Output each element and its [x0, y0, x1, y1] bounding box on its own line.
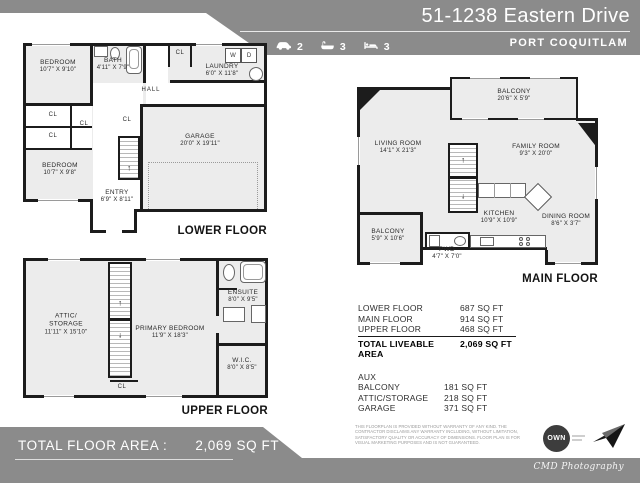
- row-label: UPPER FLOOR: [358, 324, 460, 335]
- listing-city: PORT COQUITLAM: [510, 37, 628, 49]
- wall: [357, 87, 360, 265]
- floorplan-sheet: 51-1238 Eastern Drive PORT COQUITLAM 2 3: [0, 0, 640, 483]
- room-label-garage: GARAGE 20'0" X 19'11": [180, 133, 220, 149]
- entry-door-gap: [106, 230, 122, 233]
- room-dims: 10'7" X 9'10": [40, 67, 77, 75]
- outside-area: [20, 202, 90, 240]
- closet-label: CL: [176, 50, 185, 56]
- room-label-living: LIVING ROOM 14'1" X 21'3": [375, 140, 422, 156]
- main-floor-plan: ↑ ↓ BALCONY 20'6" X 5'9" LIVING ROOM 14'…: [350, 75, 640, 290]
- bed-icon: [363, 38, 379, 56]
- wall: [134, 209, 137, 233]
- stat-beds: 3: [363, 38, 390, 56]
- room-label-balcony: BALCONY 5'9" X 10'6": [371, 228, 404, 244]
- closet-label: CL: [49, 112, 58, 118]
- room-name: KITCHEN: [481, 210, 518, 218]
- table-row-total: TOTAL LIVEABLE AREA 2,069 SQ FT: [358, 339, 548, 360]
- window: [146, 259, 180, 260]
- bathtub-fixture: [243, 264, 263, 280]
- row-value: 218 SQ FT: [444, 393, 487, 404]
- room-name: DINING ROOM: [542, 213, 590, 221]
- room-dims: 11'11" X 15'10": [45, 330, 88, 338]
- window: [555, 263, 581, 264]
- shower-fixture: [251, 305, 266, 323]
- row-label: BALCONY: [358, 382, 444, 393]
- window: [196, 44, 222, 45]
- room-name: PWD: [432, 246, 461, 254]
- row-value: 687 SQ FT: [460, 303, 503, 314]
- room-dims: 10'9" X 10'9": [481, 218, 518, 226]
- wall: [170, 80, 264, 83]
- room-name: FAMILY ROOM: [512, 143, 560, 151]
- total-floor-area-label: TOTAL FLOOR AREA :: [18, 438, 167, 453]
- wall: [134, 209, 267, 212]
- bathtub-fixture: [129, 49, 139, 69]
- window: [32, 44, 70, 45]
- window: [370, 263, 400, 264]
- window: [470, 78, 500, 79]
- floor-title-lower: LOWER FLOOR: [160, 225, 267, 237]
- window: [48, 259, 80, 260]
- stairs-down-arrow: ↓: [118, 331, 122, 340]
- wall: [143, 43, 146, 83]
- stat-beds-count: 3: [384, 41, 390, 53]
- stairs-up-arrow: ↑: [461, 156, 465, 165]
- stat-garage: 2: [276, 38, 303, 56]
- wall: [576, 77, 578, 118]
- wall: [357, 87, 452, 90]
- room-label-ensuite: ENSUITE 8'0" X 9'5": [228, 289, 258, 305]
- stove-burner: [526, 237, 530, 241]
- wall: [23, 43, 26, 202]
- window: [38, 200, 78, 201]
- wall: [264, 43, 267, 212]
- table-row: BALCONY 181 SQ FT: [358, 382, 548, 393]
- stairs-landing: [108, 318, 132, 321]
- room-label-wic: W.I.C. 8'0" X 8'5": [227, 357, 256, 373]
- room-dims: 11'9" X 18'3": [135, 333, 204, 341]
- room-name: BATH: [97, 57, 130, 65]
- wall: [140, 104, 143, 212]
- row-label: MAIN FLOOR: [358, 314, 460, 325]
- total-floor-area-value: 2,069 SQ FT: [195, 438, 279, 453]
- room-label-laundry: LAUNDRY 6'0" X 11'8": [205, 63, 238, 79]
- room-label-entry: ENTRY 6'9" X 8'11": [101, 189, 134, 205]
- room-label-bedroom: BEDROOM 10'7" X 9'10": [40, 59, 77, 75]
- table-row: UPPER FLOOR 468 SQ FT: [358, 324, 548, 335]
- paper-plane-logo: [592, 421, 626, 454]
- row-value: 914 SQ FT: [460, 314, 503, 325]
- listing-stats: 2 3 3: [276, 38, 390, 56]
- dryer-label: D: [247, 53, 251, 59]
- stairs: [118, 136, 140, 180]
- stove-burner: [519, 242, 523, 246]
- window: [44, 396, 74, 397]
- row-label: ATTIC/STORAGE: [358, 393, 444, 404]
- room-dims: 6'0" X 11'8": [205, 71, 238, 79]
- vanity-fixture: [223, 307, 245, 322]
- header-divider: [240, 31, 630, 32]
- wall: [90, 43, 93, 106]
- room-label-bath: BATH 4'11" X 7'9": [97, 57, 130, 73]
- room-dims: 5'9" X 10'6": [371, 236, 404, 244]
- floor-title-upper: UPPER FLOOR: [160, 405, 268, 417]
- window: [518, 119, 544, 120]
- room-name: STORAGE: [45, 321, 88, 329]
- table-divider: [358, 336, 516, 337]
- window: [462, 119, 488, 120]
- stove-burner: [519, 237, 523, 241]
- stairs-down-arrow: ↓: [461, 192, 465, 201]
- room-dims: 20'6" X 5'9": [497, 96, 530, 104]
- room-name: BEDROOM: [42, 162, 78, 170]
- floor-title-main: MAIN FLOOR: [500, 273, 598, 285]
- row-label: GARAGE: [358, 403, 444, 414]
- lower-floor-plan: W D ↑ BEDROOM 10'7" X 9'10" BATH 4'11" X…: [20, 40, 270, 240]
- own-logo: OWN: [543, 425, 570, 452]
- table-row: ATTIC/STORAGE 218 SQ FT: [358, 393, 548, 404]
- room-dims: 6'9" X 8'11": [101, 197, 134, 205]
- room-name: GARAGE: [180, 133, 220, 141]
- washer-label: W: [230, 53, 236, 59]
- toilet-fixture: [454, 236, 466, 246]
- water-heater-fixture: [249, 67, 263, 81]
- window: [530, 78, 560, 79]
- room-name: ENTRY: [101, 189, 134, 197]
- dryer-box: D: [241, 48, 257, 63]
- room-name: ENSUITE: [228, 289, 258, 297]
- room-label-family: FAMILY ROOM 9'3" X 20'0": [512, 143, 560, 159]
- window: [358, 137, 359, 165]
- wall: [23, 258, 26, 398]
- room-dims: 14'1" X 21'3": [375, 148, 422, 156]
- row-label: LOWER FLOOR: [358, 303, 460, 314]
- car-icon: [276, 38, 292, 56]
- window: [146, 396, 182, 397]
- room-name: BALCONY: [497, 88, 530, 96]
- row-value: 2,069 SQ FT: [460, 339, 512, 360]
- toilet-fixture: [223, 264, 235, 281]
- wall: [70, 106, 72, 148]
- own-logo-tagline: [572, 435, 585, 437]
- wall: [90, 199, 93, 233]
- photography-credit: CMD Photography: [533, 462, 624, 472]
- room-dims: 10'7" X 9'8": [42, 170, 78, 178]
- wall: [190, 43, 192, 67]
- hall-area: [93, 83, 143, 105]
- table-row-aux-header: AUX: [358, 372, 548, 383]
- wall: [26, 148, 92, 150]
- stairs-up-arrow: ↑: [118, 299, 122, 308]
- window: [596, 167, 597, 199]
- table-row: LOWER FLOOR 687 SQ FT: [358, 303, 548, 314]
- wall: [26, 103, 92, 106]
- room-dims: 8'6" X 3'7": [542, 221, 590, 229]
- listing-address: 51-1238 Eastern Drive: [421, 5, 630, 28]
- wall: [450, 77, 452, 118]
- floor-fill: [357, 87, 450, 250]
- wall: [143, 104, 264, 107]
- wall: [420, 212, 423, 265]
- total-floor-area: TOTAL FLOOR AREA : 2,069 SQ FT: [18, 438, 279, 453]
- area-summary-table: LOWER FLOOR 687 SQ FT MAIN FLOOR 914 SQ …: [358, 303, 548, 414]
- closet-label: CL: [80, 121, 89, 127]
- room-label-bedroom: BEDROOM 10'7" X 9'8": [42, 162, 78, 178]
- room-name: ATTIC/: [45, 313, 88, 321]
- garage-door-outline: [148, 162, 258, 209]
- table-row: MAIN FLOOR 914 SQ FT: [358, 314, 548, 325]
- disclaimer-text: THIS FLOORPLAN IS PROVIDED WITHOUT WARRA…: [355, 424, 535, 445]
- room-dims: 4'11" X 7'9": [97, 65, 130, 73]
- room-name: BALCONY: [371, 228, 404, 236]
- room-label-attic: ATTIC/ STORAGE 11'11" X 15'10": [45, 313, 88, 338]
- table-row: GARAGE 371 SQ FT: [358, 403, 548, 414]
- stat-garage-count: 2: [297, 41, 303, 53]
- closet-label: CL: [49, 133, 58, 139]
- wall: [110, 380, 138, 382]
- kitchen-counter: [494, 183, 495, 198]
- stove-burner: [526, 242, 530, 246]
- room-label-kitchen: KITCHEN 10'9" X 10'9": [481, 210, 518, 226]
- room-name: W.I.C.: [227, 357, 256, 365]
- wall: [168, 43, 170, 67]
- bath-icon: [320, 38, 335, 56]
- room-dims: 20'0" X 19'11": [180, 141, 220, 149]
- stairs-landing: [448, 176, 478, 179]
- room-name: BEDROOM: [40, 59, 77, 67]
- row-value: 468 SQ FT: [460, 324, 503, 335]
- wall: [357, 212, 423, 215]
- row-label: AUX: [358, 372, 460, 383]
- stat-baths: 3: [320, 38, 346, 56]
- stat-baths-count: 3: [340, 41, 346, 53]
- row-value: 181 SQ FT: [444, 382, 487, 393]
- closet-label: CL: [118, 384, 127, 390]
- own-logo-text: OWN: [547, 435, 565, 442]
- room-label-balcony: BALCONY 20'6" X 5'9": [497, 88, 530, 104]
- room-dims: 4'7" X 7'0": [432, 254, 461, 262]
- room-dims: 9'3" X 20'0": [512, 151, 560, 159]
- washer-box: W: [225, 48, 241, 63]
- room-label-dining: DINING ROOM 8'6" X 3'7": [542, 213, 590, 229]
- wall: [219, 343, 268, 346]
- upper-floor-plan: ↑ ↓ ATTIC/ STORAGE 11'11" X 15'10" PRIMA…: [20, 255, 280, 423]
- hall-label: HALL: [141, 87, 160, 93]
- row-value: 371 SQ FT: [444, 403, 487, 414]
- hall-area: [146, 83, 264, 104]
- kitchen-sink: [480, 237, 494, 246]
- room-name: PRIMARY BEDROOM: [135, 325, 204, 333]
- room-label-pwd: PWD 4'7" X 7'0": [432, 246, 461, 262]
- kitchen-counter: [478, 183, 526, 198]
- room-label-primary-bedroom: PRIMARY BEDROOM 11'9" X 18'3": [135, 325, 204, 341]
- sink-fixture: [94, 46, 108, 57]
- room-dims: 8'0" X 8'5": [227, 365, 256, 373]
- stairs-up-arrow: ↑: [127, 164, 131, 173]
- wall: [216, 258, 219, 316]
- closet-label: CL: [123, 117, 132, 123]
- own-logo-tagline: [572, 439, 582, 441]
- room-dims: 8'0" X 9'5": [228, 297, 258, 305]
- room-name: LAUNDRY: [205, 63, 238, 71]
- kitchen-counter: [510, 183, 511, 198]
- room-name: LIVING ROOM: [375, 140, 422, 148]
- footer-underline: [15, 459, 233, 460]
- row-label: TOTAL LIVEABLE AREA: [358, 339, 460, 360]
